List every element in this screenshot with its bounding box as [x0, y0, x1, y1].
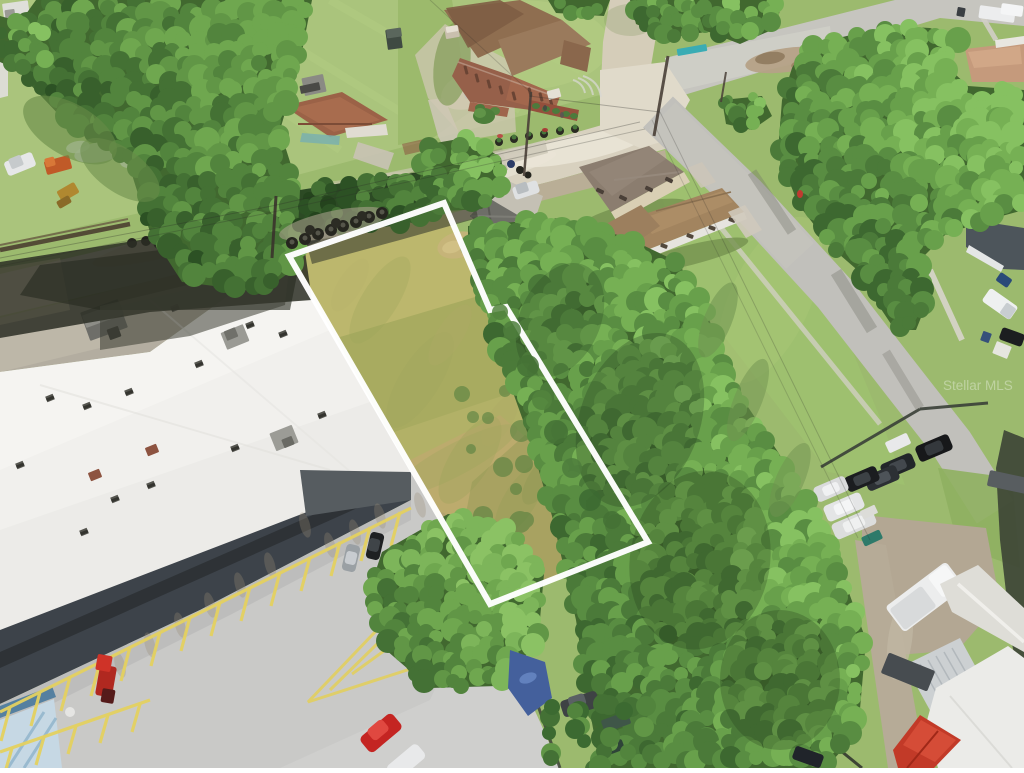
svg-text:Stellar MLS: Stellar MLS [943, 378, 1013, 393]
